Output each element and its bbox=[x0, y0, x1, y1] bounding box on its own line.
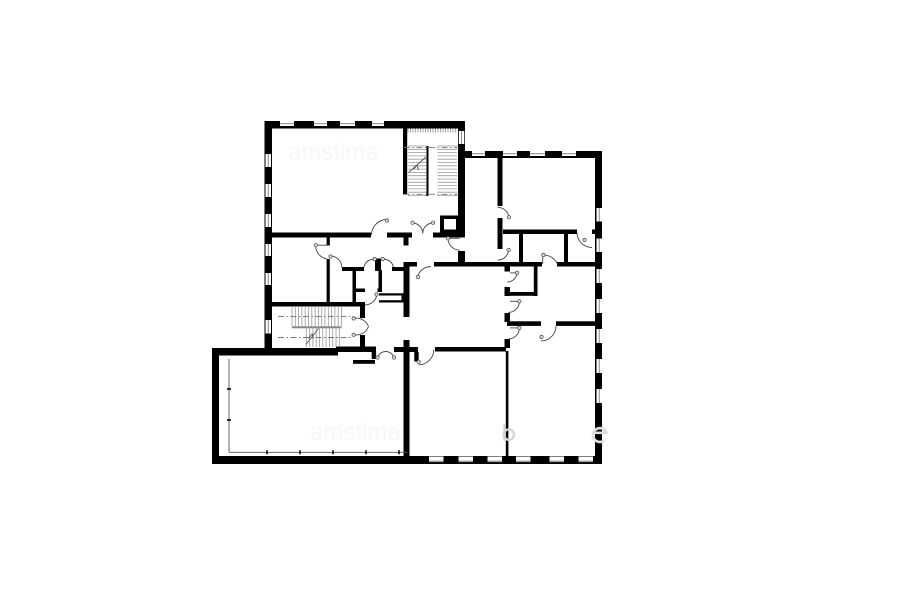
svg-text:amstima: amstima bbox=[310, 419, 401, 446]
svg-text:amstima: amstima bbox=[288, 139, 379, 166]
